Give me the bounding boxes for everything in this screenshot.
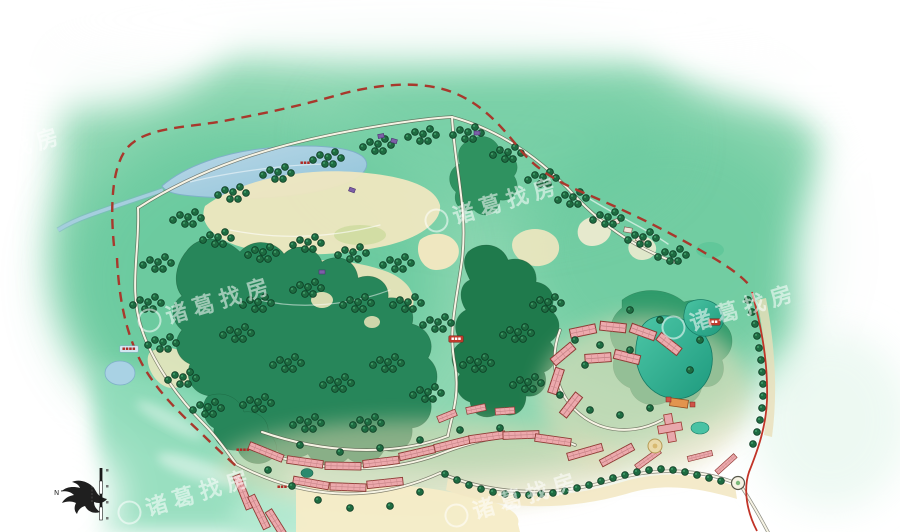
north-label: N bbox=[54, 489, 59, 497]
small-pond bbox=[105, 361, 135, 385]
master-plan-canvas: N bbox=[0, 0, 900, 532]
master-plan-screenshot: N ▪▪▪ ▪▪▪▪ ▪▪▪ ▪▪▪▪ ▪▪▪ ▪▪ 诸葛找房 e.com 诸葛… bbox=[0, 0, 900, 532]
